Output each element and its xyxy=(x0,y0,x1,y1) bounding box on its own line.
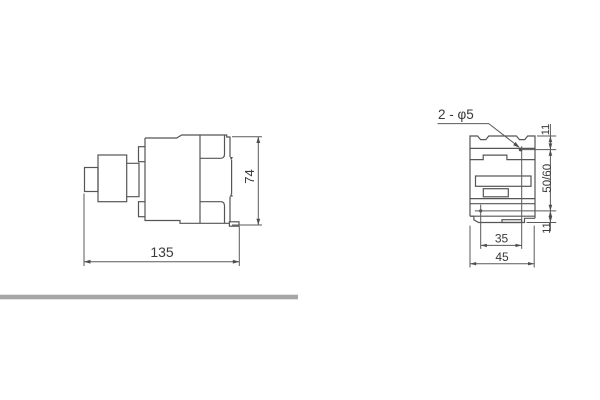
dim-11-top-label: 11 xyxy=(540,124,552,135)
holes-callout-label: 2 - φ5 xyxy=(438,107,474,122)
dim-right-arrow-lower-up xyxy=(549,211,553,217)
dim-right-arrow-bottom-down xyxy=(549,216,553,222)
side-view-button xyxy=(85,168,99,192)
dim-45-label: 45 xyxy=(495,250,509,264)
front-view-clip-tab xyxy=(502,220,522,223)
dim-right-arrow-top-up xyxy=(549,136,553,142)
side-view-body-outline xyxy=(145,135,232,223)
side-view-tab-top xyxy=(139,147,146,162)
dim-right-arrow-hole-down xyxy=(549,143,553,149)
dim-right-arrow-lower-down xyxy=(549,205,553,211)
dim-45-arrow-left xyxy=(470,262,476,265)
dim-74-arrow-bottom xyxy=(256,219,260,225)
side-view-neck xyxy=(127,163,139,196)
holes-callout-leader xyxy=(438,124,518,146)
side-view-tab-bottom xyxy=(139,202,146,217)
dim-right-arrow-hole-up xyxy=(549,150,553,156)
holes-callout: 2 - φ5 xyxy=(438,107,520,148)
side-view-inner-block-bottom xyxy=(200,202,225,224)
separator-bar xyxy=(0,295,298,300)
dim-74-arrow-top xyxy=(256,137,260,143)
dim-74: 74 xyxy=(232,137,262,225)
side-view-head xyxy=(98,155,127,202)
front-view xyxy=(470,136,535,223)
front-view-small-plate xyxy=(483,189,508,197)
dim-50-60-label: 50/60 xyxy=(542,164,554,193)
din-claw-top xyxy=(230,157,233,160)
front-view-nameplate xyxy=(476,176,532,186)
dim-35-arrow-right xyxy=(516,244,522,247)
front-view-section-lines xyxy=(470,148,535,216)
front-view-step-line xyxy=(470,155,535,160)
side-view-foot xyxy=(229,222,239,226)
dim-135-label: 135 xyxy=(150,244,174,260)
dim-45-arrow-right xyxy=(528,262,534,265)
dim-135-arrow-right xyxy=(233,260,240,264)
dim-135: 135 xyxy=(84,194,239,267)
dim-74-label: 74 xyxy=(242,169,257,183)
dim-35: 35 xyxy=(481,146,522,249)
side-view-inner-block-top xyxy=(200,135,225,158)
dim-135-arrow-left xyxy=(84,260,91,264)
dim-11-bottom-label: 11 xyxy=(541,222,553,233)
technical-drawing: 74 135 2 - φ5 xyxy=(0,0,600,400)
dim-35-label: 35 xyxy=(495,232,509,246)
dim-35-arrow-left xyxy=(481,244,487,247)
dim-right-column: 11 50/60 11 xyxy=(475,124,556,234)
side-view xyxy=(85,135,240,226)
technical-drawing-page: 74 135 2 - φ5 xyxy=(0,0,600,400)
